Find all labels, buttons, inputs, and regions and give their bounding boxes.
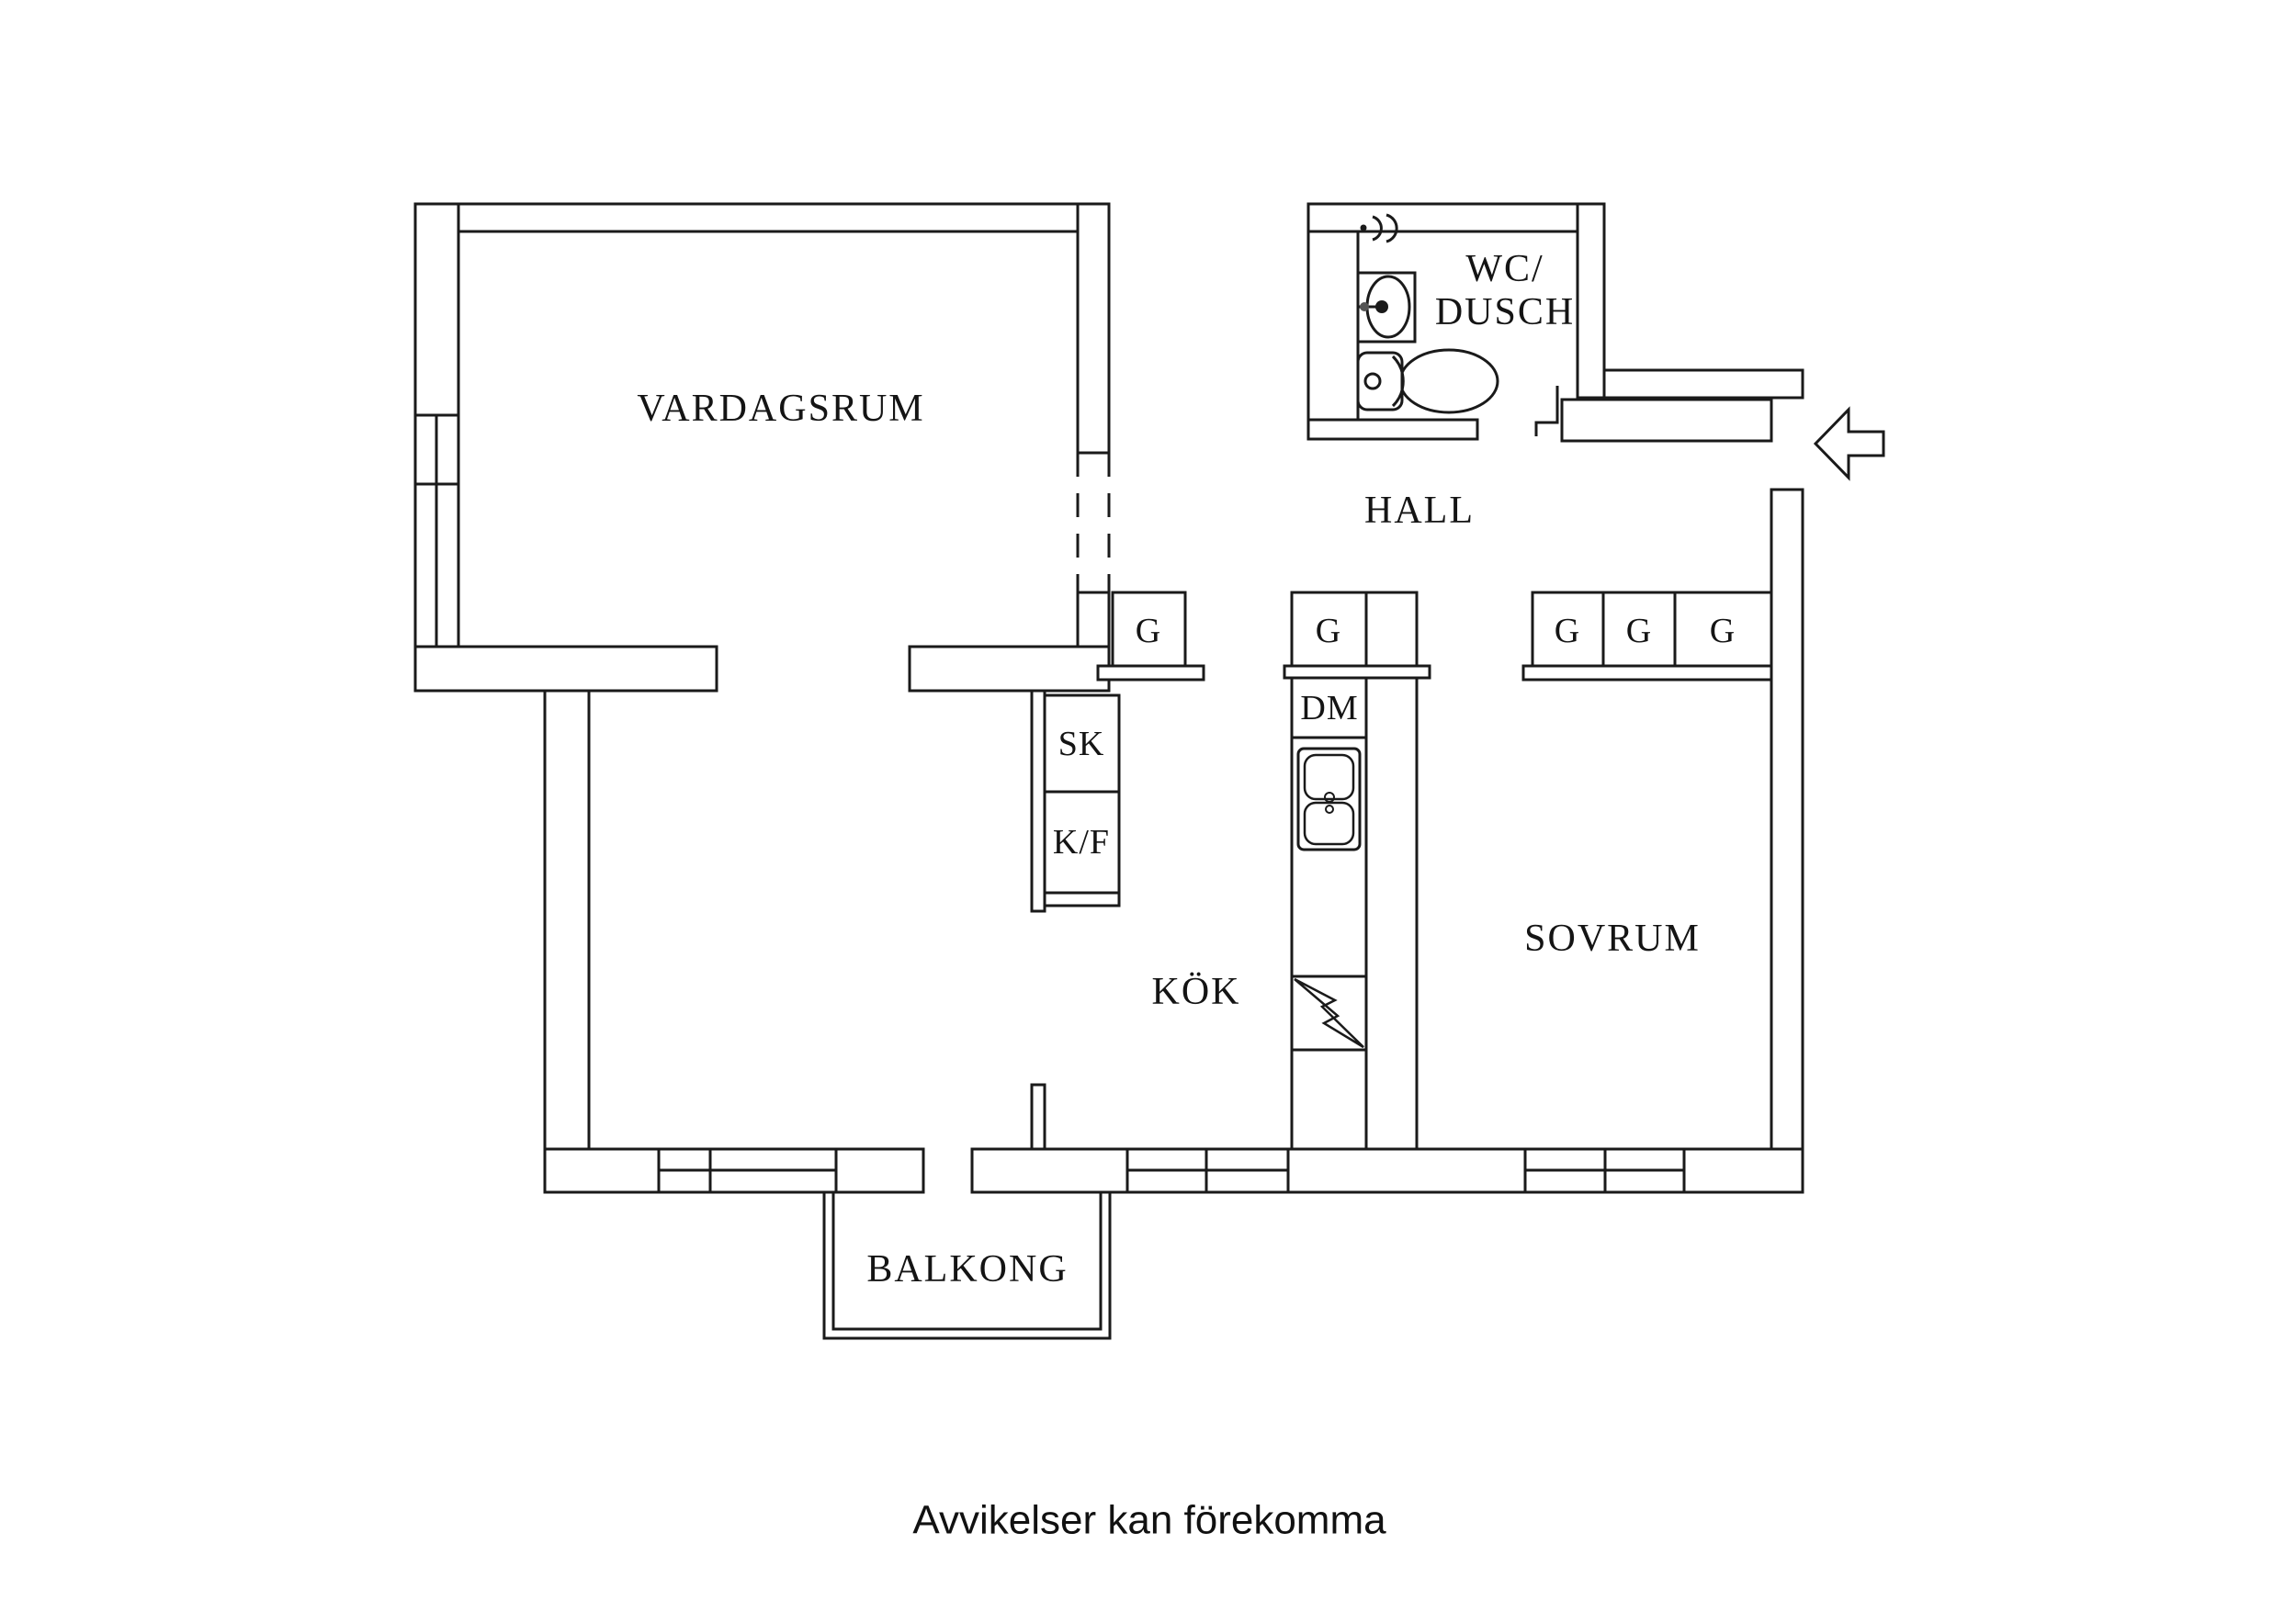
label-closet-sovrum-g1: G — [1555, 612, 1580, 650]
hall-coat-rack-jamb — [1536, 386, 1557, 436]
wall-kitchen-stub — [1032, 1085, 1045, 1149]
wall-wc-left — [1308, 231, 1358, 439]
wall-right-lower — [1771, 490, 1803, 1192]
room-label-kok: KÖK — [1152, 971, 1241, 1013]
wall-kitchen-thin — [1032, 691, 1045, 911]
label-closet-kitchen-g: G — [1316, 612, 1341, 650]
label-cabinet-sk: SK — [1058, 725, 1105, 763]
entry-arrow-icon — [1815, 410, 1883, 478]
wall-bottom-3 — [972, 1149, 1127, 1192]
wall-wc-right — [1578, 204, 1604, 398]
kitchen-sink-icon — [1298, 749, 1360, 850]
hall-coat-rack — [1562, 400, 1771, 441]
wall-bottom-4 — [1288, 1149, 1525, 1192]
wall-vardagsrum-right-upper — [1078, 204, 1109, 453]
room-label-sovrum: SOVRUM — [1524, 918, 1701, 960]
closet-hall-shelf — [1098, 666, 1204, 680]
toilet-icon — [1358, 350, 1498, 412]
room-label-wc-line2: DUSCH — [1435, 291, 1575, 333]
wall-band-left — [415, 647, 717, 691]
washbasin-icon — [1358, 273, 1415, 342]
kitchen-counter-cap — [1284, 666, 1430, 678]
cabinet-base-strip — [1045, 893, 1119, 906]
label-dishwasher-dm: DM — [1300, 689, 1358, 727]
wall-lower-left — [545, 691, 589, 1192]
closet-sovrum-shelf — [1523, 666, 1771, 680]
room-label-vardagsrum: VARDAGSRUM — [637, 388, 924, 430]
room-label-balkong: BALKONG — [866, 1248, 1068, 1291]
disclaimer-note: Avvikelser kan förekomma — [912, 1498, 1386, 1543]
wall-bottom-5 — [1684, 1149, 1803, 1192]
label-cabinet-kf: K/F — [1053, 823, 1110, 862]
wall-bottom-1 — [545, 1149, 659, 1192]
label-closet-hall-g: G — [1136, 612, 1161, 650]
wall-entry-band — [1604, 370, 1803, 398]
room-label-wc-line1: WC/ — [1465, 248, 1544, 290]
wall-bottom-2 — [836, 1149, 923, 1192]
label-closet-sovrum-g2: G — [1626, 612, 1652, 650]
wall-wc-south — [1308, 420, 1477, 439]
floorplan: VARDAGSRUM WC/ DUSCH HALL KÖK SOVRUM BAL… — [0, 0, 2296, 1623]
label-closet-sovrum-g3: G — [1710, 612, 1736, 650]
wall-wc-top — [1308, 204, 1604, 231]
wall-band-right — [910, 647, 1109, 691]
room-label-hall: HALL — [1364, 490, 1475, 532]
wall-vardagsrum-top — [415, 204, 1109, 231]
dashed-opening — [1078, 453, 1109, 592]
